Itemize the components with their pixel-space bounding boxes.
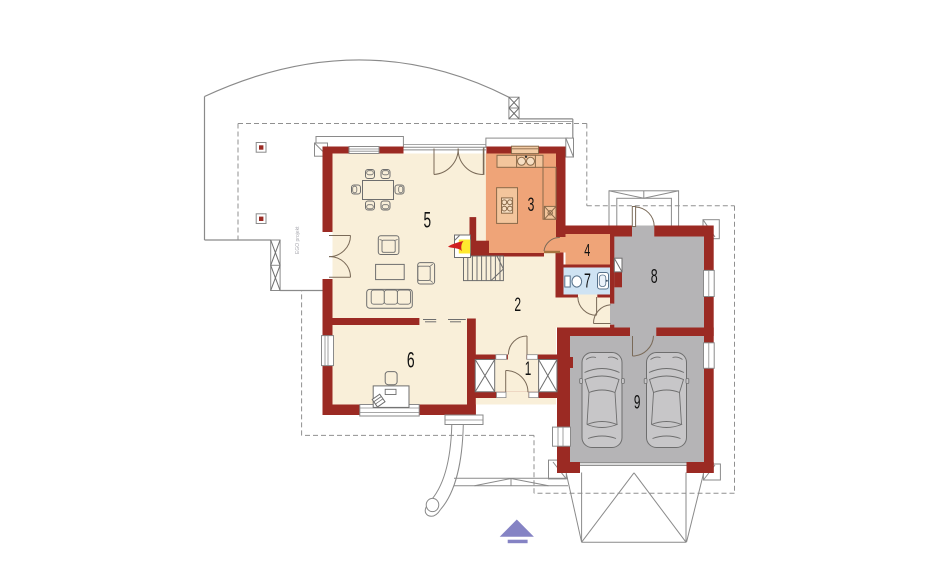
svg-text:7: 7 — [584, 269, 591, 292]
svg-text:8: 8 — [651, 265, 658, 288]
svg-text:6: 6 — [407, 347, 415, 372]
svg-text:9: 9 — [634, 393, 641, 413]
svg-text:1: 1 — [525, 359, 532, 379]
svg-text:3: 3 — [528, 194, 535, 216]
svg-text:5: 5 — [424, 207, 432, 232]
svg-text:4: 4 — [584, 242, 590, 261]
svg-text:EGO projekt: EGO projekt — [295, 226, 301, 254]
svg-text:2: 2 — [514, 294, 521, 316]
